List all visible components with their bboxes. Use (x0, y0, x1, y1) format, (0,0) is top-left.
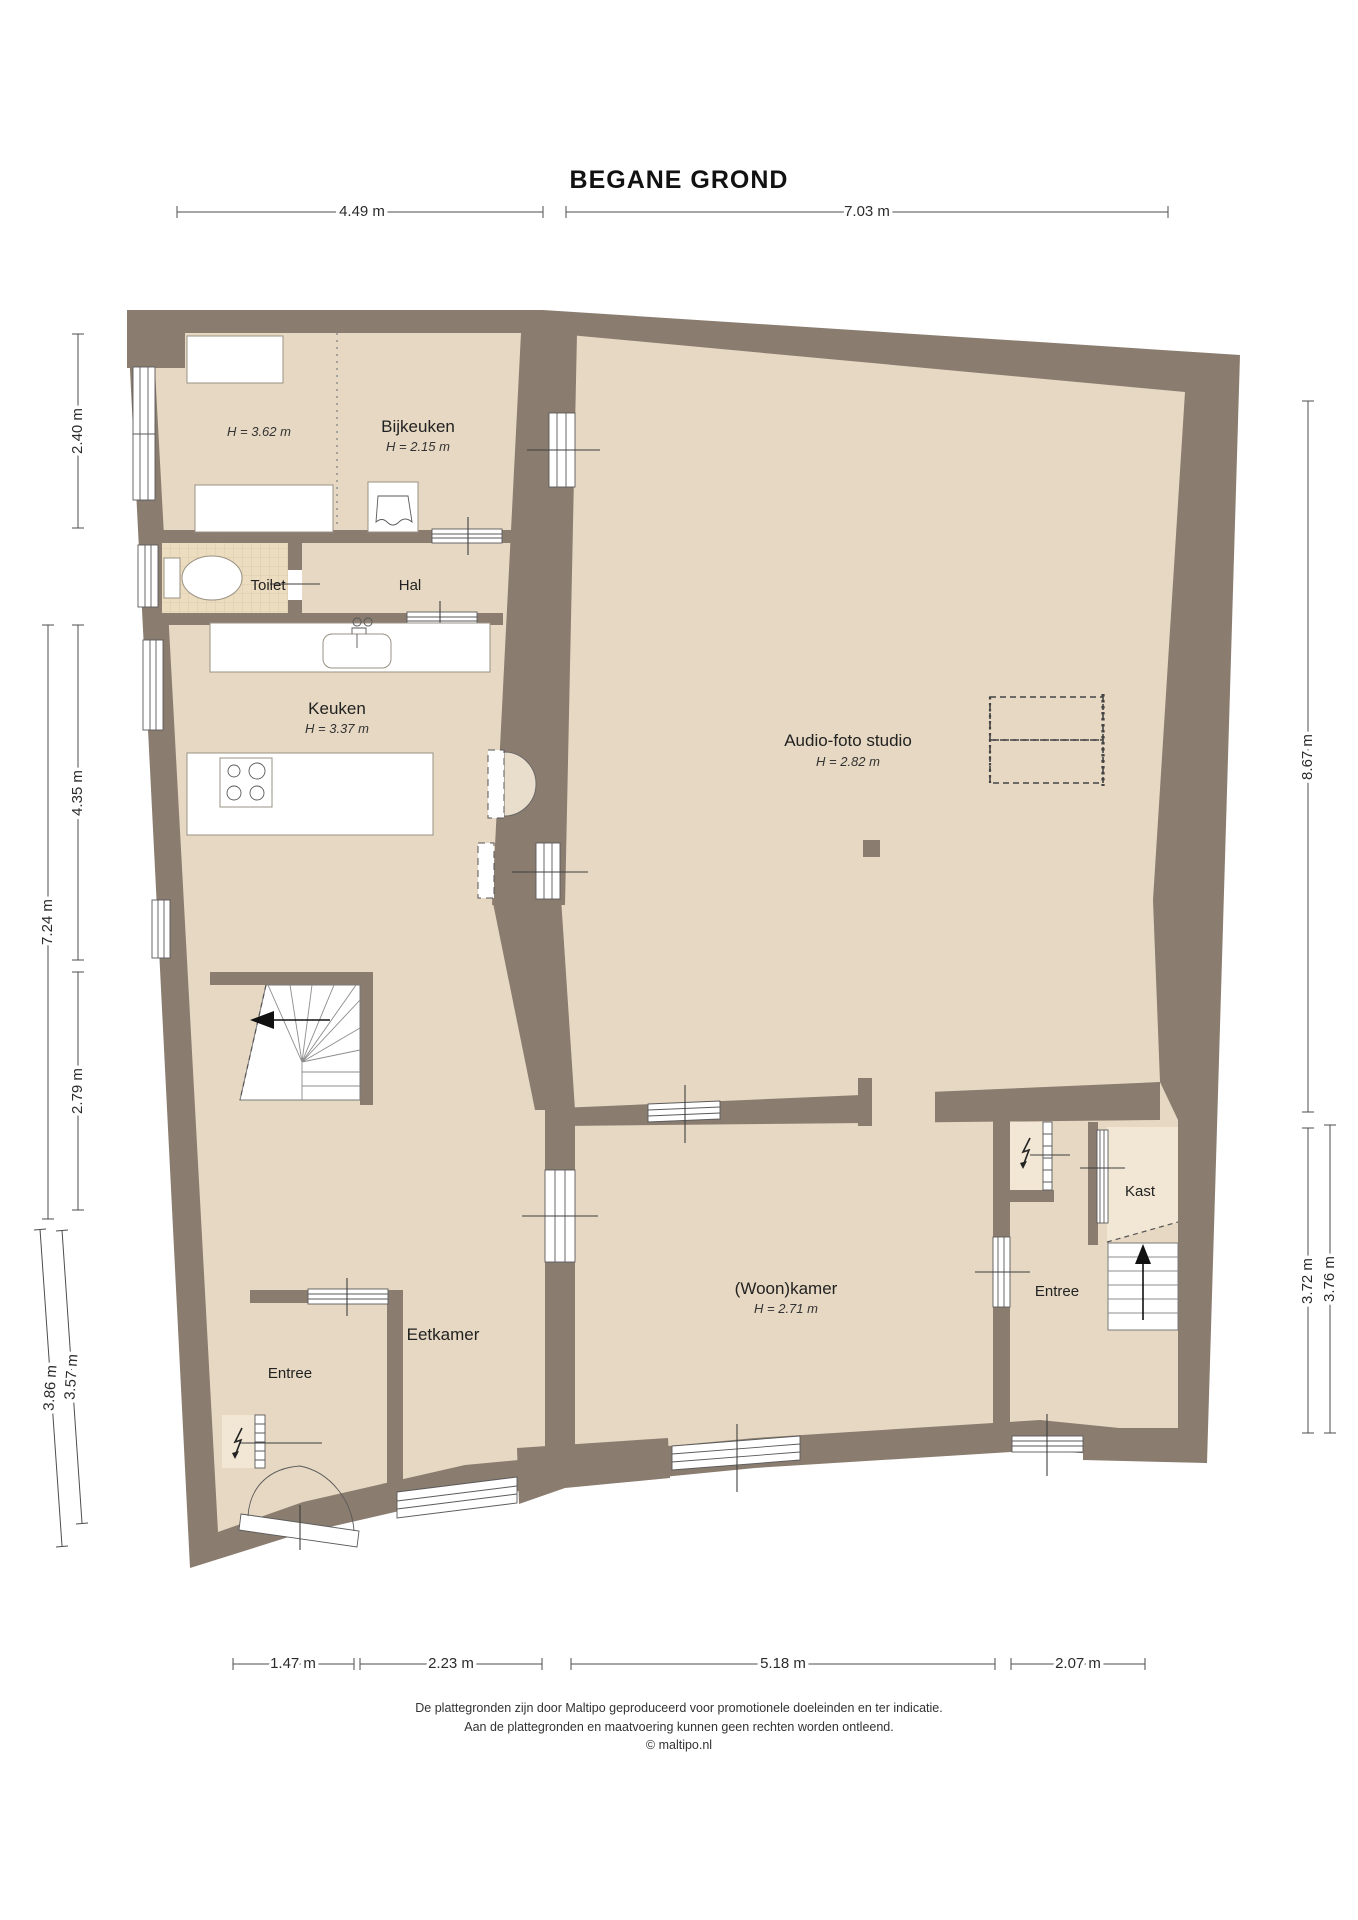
wall-t-block (517, 1438, 670, 1504)
dim-top-2: 7.03 m (566, 203, 1168, 220)
counter-storage (187, 336, 283, 383)
window-left-1 (133, 367, 155, 500)
hal-label: Hal (399, 577, 422, 594)
corner-wall-chunk (127, 310, 185, 368)
wall-bottom-right-block (1083, 1428, 1207, 1463)
toilet-icon (164, 556, 242, 600)
footer-line-2: Aan de plattegronden en maatvoering kunn… (464, 1720, 894, 1734)
studio-height-label: H = 2.82 m (816, 754, 880, 769)
wall-stairs-top (210, 972, 373, 985)
toilet-label: Toilet (250, 577, 286, 594)
window-left-3 (143, 640, 163, 730)
kast-label: Kast (1125, 1183, 1156, 1200)
eetkamer-label: Eetkamer (407, 1325, 480, 1344)
floorplan-page: H = 3.62 m Bijkeuken H = 2.15 m Toilet H… (0, 0, 1358, 1920)
dim-bottom-207: 2.07 m (1011, 1655, 1145, 1672)
dim-left-357: 3.57 m (56, 1230, 88, 1524)
woonkamer-label: (Woon)kamer (735, 1279, 838, 1298)
svg-text:5.18 m: 5.18 m (760, 1655, 806, 1672)
woonkamer-height-label: H = 2.71 m (754, 1301, 818, 1316)
counter-bijkeuken (195, 485, 333, 532)
svg-text:3.86 m: 3.86 m (40, 1364, 60, 1411)
dim-left-724: 7.24 m (39, 625, 56, 1219)
svg-text:2.79 m: 2.79 m (69, 1068, 86, 1114)
svg-text:2.07 m: 2.07 m (1055, 1655, 1101, 1672)
wall-stairs-right (360, 972, 373, 1105)
svg-text:3.76 m: 3.76 m (1321, 1256, 1338, 1302)
opening-studio-rear (872, 1078, 935, 1127)
storage-height-label: H = 3.62 m (227, 424, 291, 439)
keuken-height-label: H = 3.37 m (305, 721, 369, 736)
dim-top-1: 4.49 m (177, 203, 543, 220)
footer-disclaimer: De plattegronden zijn door Maltipo gepro… (415, 1701, 942, 1752)
svg-text:2.40 m: 2.40 m (69, 408, 86, 454)
bijkeuken-label: Bijkeuken (381, 417, 455, 436)
wall-kast-left (1088, 1122, 1098, 1245)
svg-text:2.23 m: 2.23 m (428, 1655, 474, 1672)
dim-right-372: 3.72 m (1299, 1128, 1316, 1433)
opening-dashed (478, 843, 494, 898)
svg-text:7.03 m: 7.03 m (844, 203, 890, 220)
svg-text:4.35 m: 4.35 m (69, 770, 86, 816)
footer-line-1: De plattegronden zijn door Maltipo gepro… (415, 1701, 942, 1715)
dim-bottom-223: 2.23 m (360, 1655, 542, 1672)
dim-bottom-518: 5.18 m (571, 1655, 995, 1672)
svg-text:7.24 m: 7.24 m (39, 899, 56, 945)
page-title: BEGANE GROND (570, 166, 789, 194)
sink-counter (210, 618, 490, 672)
wall-eetkamer-woonkamer (545, 1108, 575, 1460)
svg-text:8.67 m: 8.67 m (1299, 734, 1316, 780)
dim-right-867: 8.67 m (1299, 401, 1316, 1112)
svg-text:1.47 m: 1.47 m (270, 1655, 316, 1672)
svg-text:4.49 m: 4.49 m (339, 203, 385, 220)
washer-icon (368, 482, 418, 532)
dim-left-240: 2.40 m (69, 334, 86, 528)
dim-left-279: 2.79 m (69, 972, 86, 1210)
wall-niche-bottom (1008, 1190, 1054, 1202)
svg-text:3.57 m: 3.57 m (61, 1353, 81, 1400)
studio-label: Audio-foto studio (784, 731, 912, 750)
dim-left-435: 4.35 m (69, 625, 86, 960)
window-left-4 (152, 900, 170, 958)
window-left-2 (138, 545, 158, 607)
studio-column (863, 840, 880, 857)
keuken-label: Keuken (308, 699, 366, 718)
entree-right-label: Entree (1035, 1283, 1079, 1300)
wall-entree-left-right (387, 1290, 403, 1505)
stove-counter (187, 753, 433, 835)
wall-stub (858, 1078, 872, 1126)
dim-right-376: 3.76 m (1321, 1125, 1338, 1433)
svg-text:3.72 m: 3.72 m (1299, 1258, 1316, 1304)
dim-bottom-147: 1.47 m (233, 1655, 354, 1672)
bijkeuken-height-label: H = 2.15 m (386, 439, 450, 454)
entree-left-label: Entree (268, 1365, 312, 1382)
footer-line-3: © maltipo.nl (646, 1738, 712, 1752)
floor-plan-svg: H = 3.62 m Bijkeuken H = 2.15 m Toilet H… (0, 0, 1358, 1920)
